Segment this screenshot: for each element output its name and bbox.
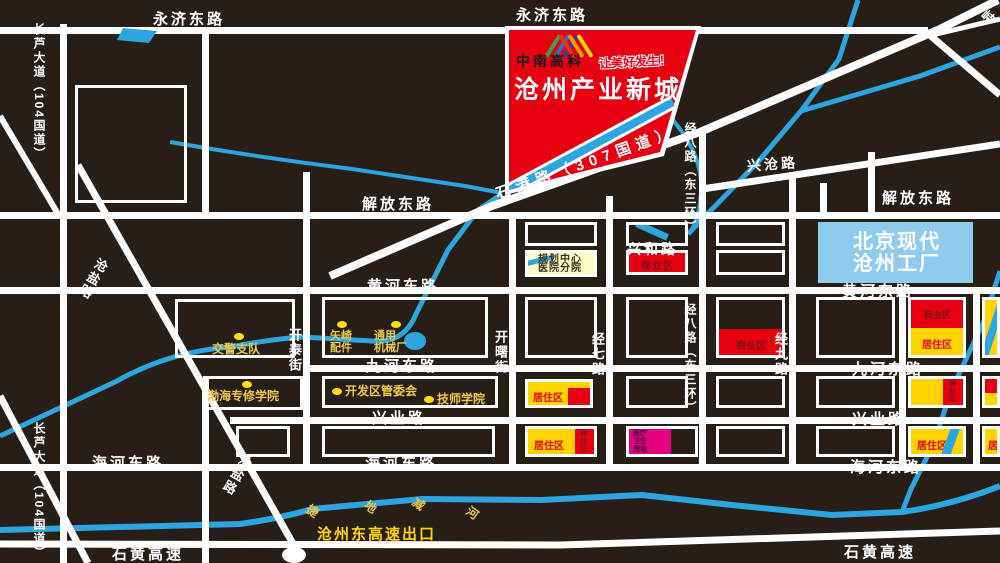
label-kaishu: 开曙街 <box>494 330 507 375</box>
label-jingjiu: 经九路 <box>774 332 787 377</box>
poi-dot <box>337 321 347 328</box>
diagonal-roads-layer <box>0 0 1000 563</box>
label-jiefang-west: 解放东路 <box>362 197 434 212</box>
poi-dot <box>424 396 434 403</box>
label-xingye-east: 兴业路 <box>852 412 906 427</box>
road-shihuang-gaosu <box>0 531 1000 545</box>
label-jiuhe-west: 九河东路 <box>366 359 438 374</box>
label-xingcang: 兴沧路 <box>747 155 799 173</box>
title-banner: 中南高科 让美好发生！ 沧州产业新城 <box>503 25 703 197</box>
poi-dot <box>391 321 401 328</box>
label-huanghe-east: 黄河东路 <box>842 284 914 299</box>
label-yongji-east: 永济东路 <box>516 8 588 23</box>
poi-committee: 开发区管委会 <box>345 385 417 397</box>
label-highway-exit: 沧州东高速出口 <box>317 527 436 542</box>
label-jingba-north: 经八路（东三环） <box>684 122 696 234</box>
poi-yazaki: 矢崎 配件 <box>330 330 352 354</box>
label-jingqi: 经七路 <box>591 332 604 377</box>
road-yongji-bend <box>925 31 1000 95</box>
label-huanghe-west: 黄河东路 <box>367 279 439 294</box>
label-changlu-north: 长芦大道（104国道） <box>33 23 45 161</box>
map-canvas: 规划中心医院分院 商业区 北京现代沧州工厂 商业区 商业区 居住区 居住区 商业… <box>0 0 1000 563</box>
poi-tech-college: 技师学院 <box>437 393 485 405</box>
label-xingye-west: 兴业路 <box>372 411 426 426</box>
poi-machinery-line2: 机械厂 <box>374 342 407 354</box>
label-changlu-south: 长芦大道（104国道） <box>33 422 45 560</box>
highway-exit-marker <box>282 547 306 563</box>
road-cangyan-lu <box>78 165 300 556</box>
label-jiuhe-east: 九河东路 <box>852 362 924 377</box>
label-yongji-west: 永济东路 <box>153 12 225 27</box>
label-haihe-farwest: 海河东路 <box>92 456 164 471</box>
poi-yazaki-line2: 配件 <box>330 342 352 354</box>
poi-bohai-college: 渤海专修学院 <box>207 390 279 402</box>
poi-yazaki-line1: 矢崎 <box>330 330 352 342</box>
label-xinghe: 兴和路 <box>627 242 678 256</box>
poi-dot <box>234 333 244 340</box>
poi-dot <box>332 388 342 395</box>
banner-title: 沧州产业新城 <box>514 70 682 106</box>
label-jingba-south: 经八路（东三环） <box>684 303 696 415</box>
label-jiefang-east: 解放东路 <box>882 191 954 206</box>
poi-traffic-police: 交警支队 <box>212 343 260 355</box>
label-kaitai: 开泰街 <box>288 328 301 373</box>
poi-machinery: 通用 机械厂 <box>374 330 407 354</box>
label-shihuang-east: 石黄高速 <box>844 545 916 560</box>
poi-dot <box>242 381 252 388</box>
label-shihuang-west: 石黄高速 <box>112 547 184 562</box>
poi-machinery-line1: 通用 <box>374 330 396 342</box>
label-haihe-east: 海河东路 <box>850 460 922 475</box>
banner-logo-text: 中南高科 <box>516 51 584 71</box>
label-haihe-west: 海河东路 <box>365 456 437 471</box>
road-corner-northwest <box>0 116 58 214</box>
